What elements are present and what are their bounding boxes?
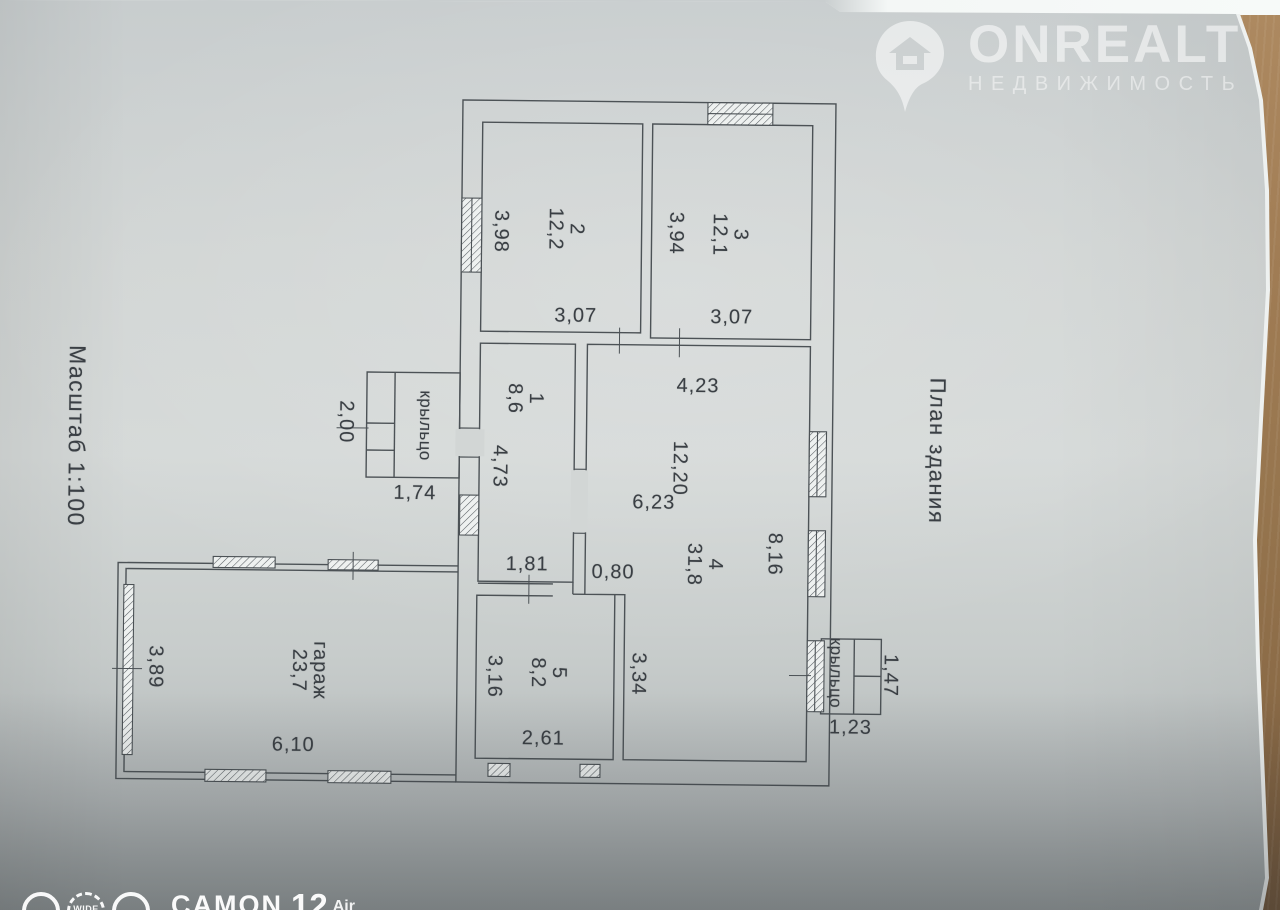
room-4-label: 4 31,8 xyxy=(683,543,725,586)
garage-dim-height: 3,89 xyxy=(144,645,165,688)
porch-right-name: крыльцо xyxy=(825,638,847,709)
floor-plan-drawing xyxy=(0,0,1280,910)
wide-label: WIDE xyxy=(70,904,102,910)
room-2-area: 12,2 xyxy=(544,207,565,250)
camera-watermark-text: CAMON 12 Air xyxy=(171,892,355,910)
room-4-dim-inner: 6,23 xyxy=(632,492,675,513)
camera-lens-icon xyxy=(112,892,150,910)
porch-right-dim-width: 1,23 xyxy=(829,717,872,738)
room-4-area: 31,8 xyxy=(683,543,704,586)
porch-left-dim-height: 2,00 xyxy=(335,400,356,443)
room-4-dim-right: 8,16 xyxy=(764,533,785,576)
plan-title: План здания xyxy=(926,378,949,525)
room-4-dim-nook: 0,80 xyxy=(591,562,634,583)
house-location-pin-icon xyxy=(874,20,946,115)
camera-lens-icon xyxy=(22,892,60,910)
room-2-dim-height: 3,98 xyxy=(490,210,511,253)
porch-right-dim-height: 1,47 xyxy=(879,654,900,697)
room-3-number: 3 xyxy=(729,213,750,256)
garage-area: 23,7 xyxy=(288,641,310,700)
room-4-dim-lower: 3,34 xyxy=(627,652,648,695)
room-4-dim-middle: 12,20 xyxy=(668,441,690,496)
garage-dim-width: 6,10 xyxy=(272,735,315,756)
room-1-dim-height: 4,73 xyxy=(488,445,509,488)
camera-suffix: Air xyxy=(333,898,355,910)
camera-watermark: WIDE CAMON 12 Air xyxy=(22,892,355,910)
garage-name: гараж xyxy=(309,641,331,700)
room-1-area: 8,6 xyxy=(504,383,525,414)
room-5-label: 5 8,2 xyxy=(527,657,569,688)
room-3-area: 12,1 xyxy=(708,213,729,256)
porch-left-name: крыльцо xyxy=(415,390,437,461)
room-4-number: 4 xyxy=(704,543,725,586)
room-2-label: 2 12,2 xyxy=(544,207,586,250)
room-5-number: 5 xyxy=(548,658,569,689)
garage-label: гараж 23,7 xyxy=(288,641,331,700)
room-2-number: 2 xyxy=(565,208,586,251)
camera-model: 12 xyxy=(291,892,328,910)
room-1-number: 1 xyxy=(525,383,546,414)
porch-left-dim-width: 1,74 xyxy=(393,483,436,504)
room-5-dim-width: 2,61 xyxy=(522,728,565,749)
wide-lens-dashed-icon: WIDE xyxy=(67,892,105,910)
onrealt-brand: ONREALT xyxy=(968,20,1243,70)
onrealt-watermark-text: ONREALT НЕДВИЖИМОСТЬ xyxy=(968,20,1243,96)
camera-brand: CAMON xyxy=(171,892,283,910)
room-1-label: 1 8,6 xyxy=(504,383,546,414)
onrealt-subtitle: НЕДВИЖИМОСТЬ xyxy=(968,73,1243,96)
floor-plan: Масштаб 1:100 План здания 2 12,2 3,98 3 … xyxy=(0,0,1280,910)
room-2-dim-width: 3,07 xyxy=(554,305,597,326)
room-3-dim-height: 3,94 xyxy=(665,212,686,255)
scale-title: Масштаб 1:100 xyxy=(65,345,88,527)
room-3-dim-width: 3,07 xyxy=(710,307,753,328)
room-5-dim-height: 3,16 xyxy=(483,655,504,698)
room-5-area: 8,2 xyxy=(527,657,548,688)
room-1-dim-width: 1,81 xyxy=(506,554,549,575)
room-3-label: 3 12,1 xyxy=(708,213,750,256)
room-4-dim-top: 4,23 xyxy=(676,376,719,397)
photo-of-floor-plan: Масштаб 1:100 План здания 2 12,2 3,98 3 … xyxy=(0,0,1280,910)
onrealt-watermark: ONREALT НЕДВИЖИМОСТЬ xyxy=(874,20,1243,115)
